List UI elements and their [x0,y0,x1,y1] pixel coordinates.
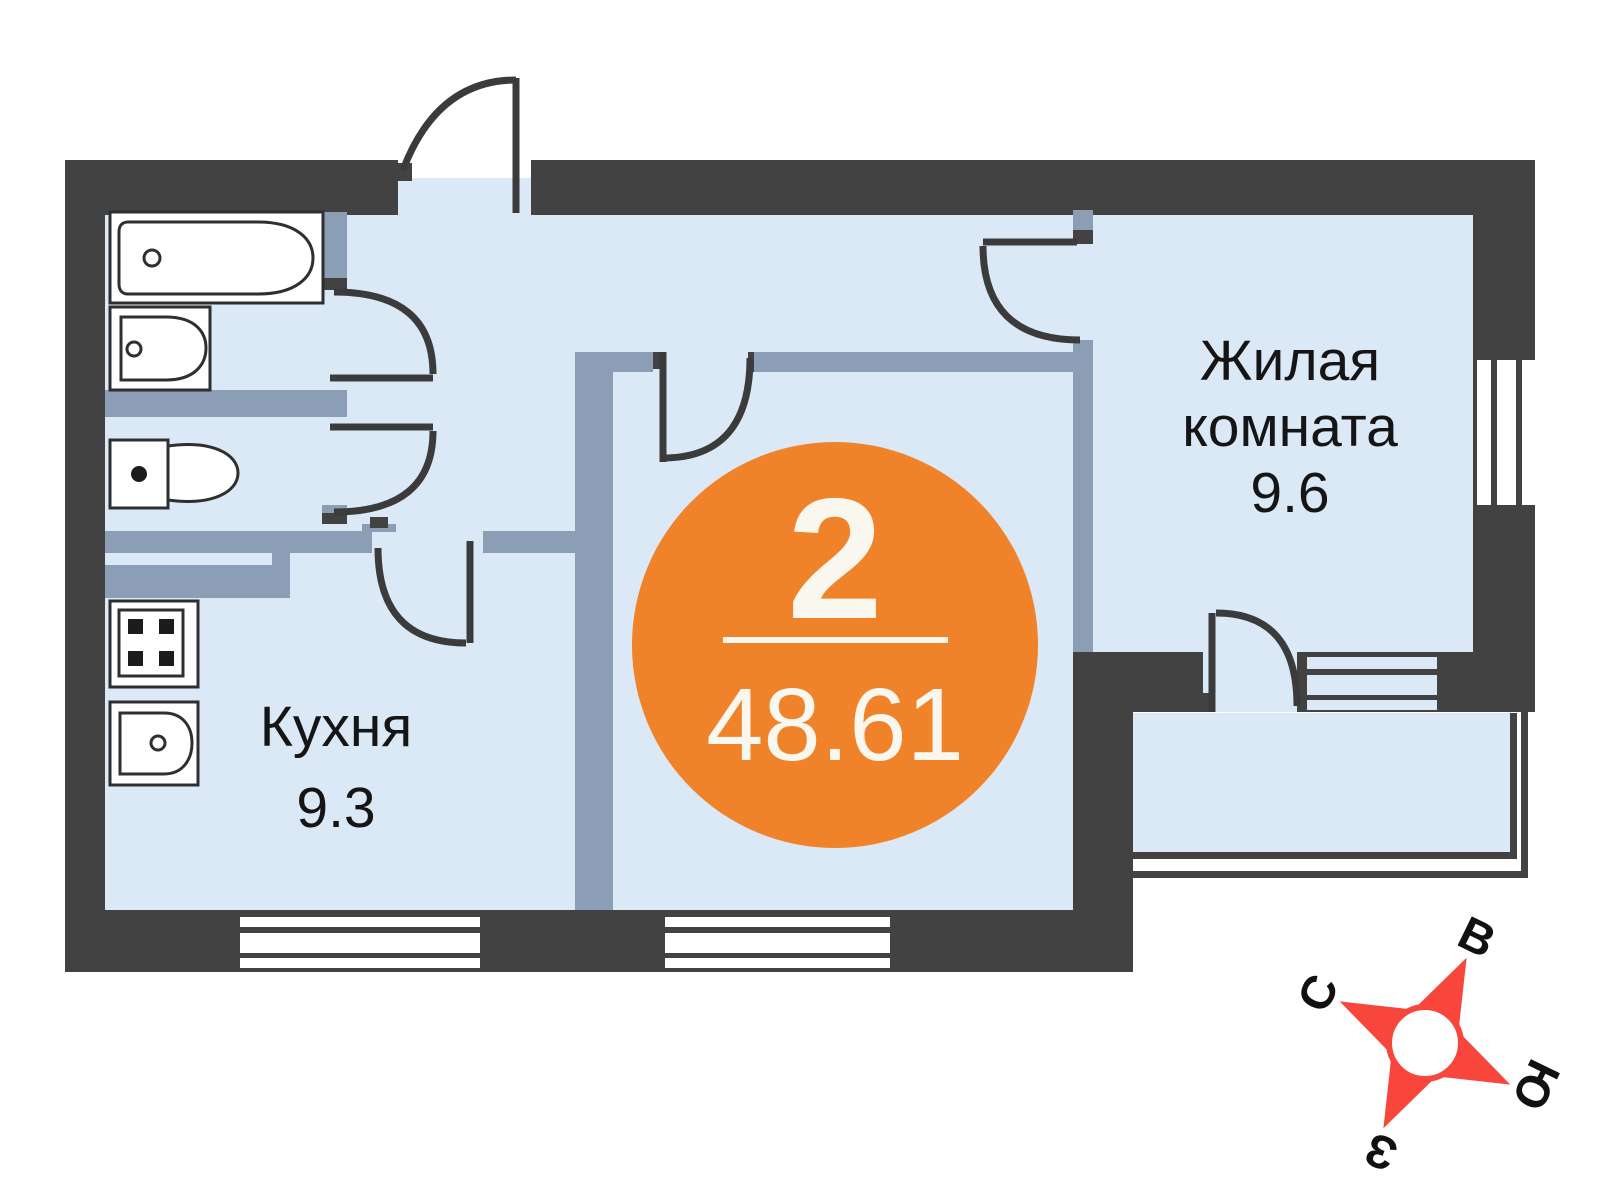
badge-total-area: 48.61 [706,667,964,782]
kitchen-room2-wall [575,352,613,910]
living-entry-pillar [1073,210,1093,232]
wall-bottom [65,910,1133,972]
living-room-area: 9.6 [1250,461,1329,525]
living-west-wall [1073,340,1093,652]
compass-south: Ю [1502,1052,1571,1119]
badge-divider [723,637,948,643]
bath-wall-upper [322,212,347,278]
floor-plan-canvas: Жилая комната 9.6 Кухня 9.3 2 48.61 С В … [0,0,1600,1200]
floor-plan: Жилая комната 9.6 Кухня 9.3 2 48.61 С В … [0,0,1600,1200]
wall-top-right [531,160,1535,215]
hall-south-wall-left [105,531,372,553]
wall-left [65,160,105,972]
balcony-outer-bottom [1133,871,1528,878]
balcony-inner-bottom [1133,852,1517,859]
kitchen-window [240,917,480,968]
washbasin-icon [110,307,210,390]
room2-window [665,917,890,968]
living-room-label-line2: комната [1182,395,1398,459]
kitchen-area: 9.3 [296,776,375,840]
living-east-window [1477,360,1539,505]
kitchen-sink-icon [110,702,198,785]
compass-north: С [1286,966,1348,1019]
wall-top-left [65,160,398,215]
compass-west: З [1357,1122,1404,1182]
compass-hub [1389,1007,1461,1079]
living-south-window [1307,657,1437,710]
balcony-inner-right [1510,713,1517,858]
bath-door-cap [322,278,347,290]
balcony-door-opening [1203,652,1297,712]
badge-rooms-count: 2 [787,463,883,655]
hall-room2-divider-left [575,352,653,372]
floor-balcony [1133,713,1510,852]
wall-connector [272,551,290,598]
compass-east: В [1450,905,1504,968]
kitchen-north-wall [105,565,290,598]
floor-entry-threshold [398,178,531,215]
bathtub-icon [110,212,323,303]
hall-room2-divider-right [753,352,1073,372]
bath-wc-divider [105,390,347,417]
kitchen-label: Кухня [260,695,413,759]
balcony-outer-right [1521,712,1528,878]
kitchen-door-cap [370,517,388,528]
stove-icon [110,601,198,687]
wall-corner-block [1073,652,1133,972]
compass-rose-icon: С В Ю З [1286,905,1571,1182]
living-room-label-line1: Жилая [1200,329,1380,393]
area-badge: 2 48.61 [632,442,1038,848]
